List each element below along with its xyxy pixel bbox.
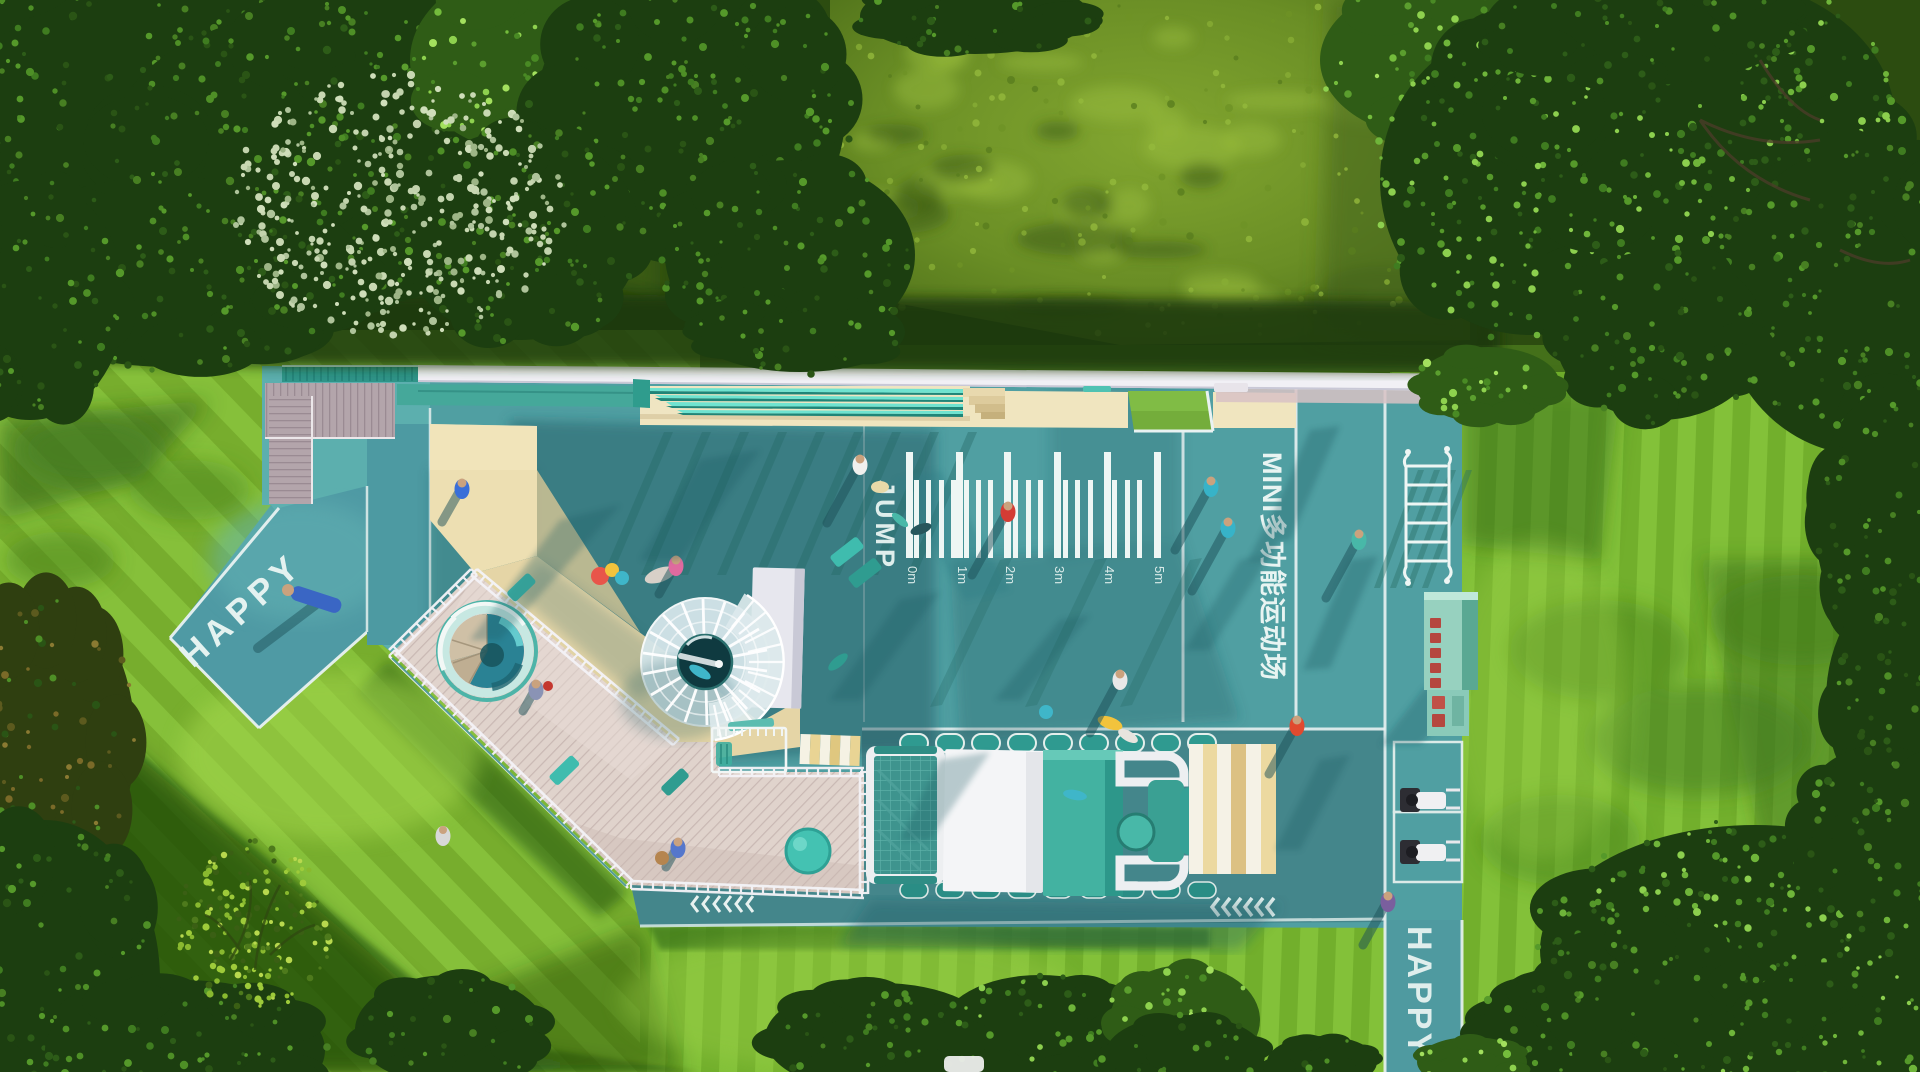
svg-text:3m: 3m bbox=[1052, 566, 1067, 584]
svg-text:5m: 5m bbox=[1152, 566, 1167, 584]
svg-text:0m: 0m bbox=[905, 566, 920, 584]
svg-text:JUMP: JUMP bbox=[870, 480, 900, 571]
svg-text:HAPPY: HAPPY bbox=[1400, 926, 1438, 1058]
svg-text:2m: 2m bbox=[1003, 566, 1018, 584]
svg-text:4m: 4m bbox=[1102, 566, 1117, 584]
